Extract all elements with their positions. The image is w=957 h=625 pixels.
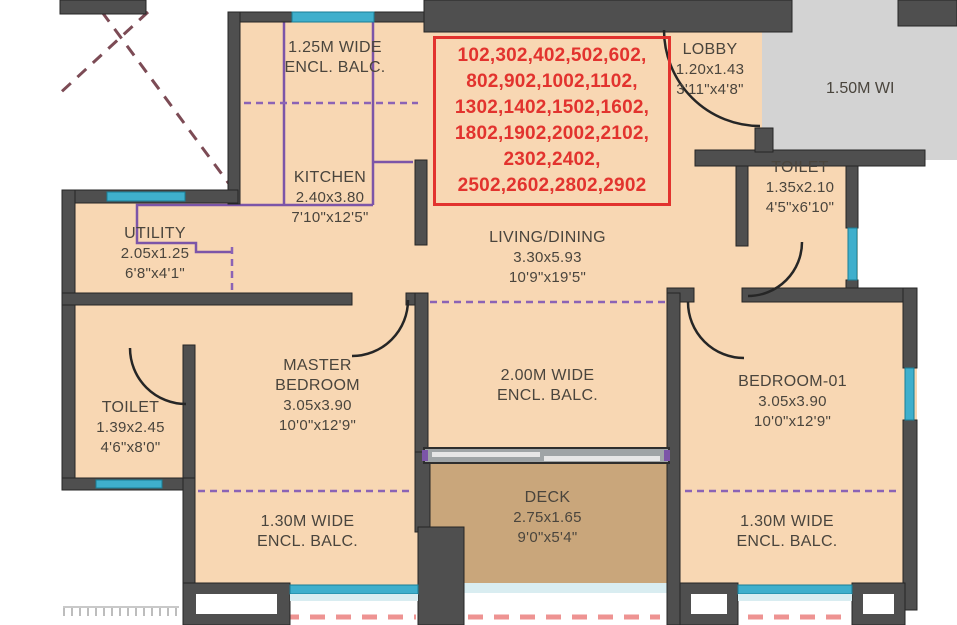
room-name: ENCL. BALC.	[430, 386, 665, 406]
wall-segment	[742, 288, 917, 302]
room-dim-ft: 4'6"x8'0"	[68, 438, 193, 458]
deck-sill	[463, 583, 667, 593]
maroon-dashed	[102, 12, 238, 196]
room-dim-m: 3.05x3.90	[680, 392, 905, 412]
wall-segment	[903, 420, 917, 610]
unit-numbers-line: 1802,1902,2002,2102,	[436, 121, 668, 147]
room-dim-ft: 10'9"x19'5"	[430, 268, 665, 288]
planter-box-inner	[196, 594, 277, 614]
wall-segment	[903, 288, 917, 368]
room-name: TOILET	[68, 398, 193, 418]
unit-numbers-line: 802,902,1002,1102,	[436, 69, 668, 95]
room-name: 1.25M WIDE	[245, 38, 425, 58]
room-dim-m: 3.30x5.93	[430, 248, 665, 268]
sliding-door-panel	[432, 452, 540, 457]
wall-segment	[60, 0, 146, 14]
unit-numbers-line: 2302,2402,	[436, 147, 668, 173]
room-name: ENCL. BALC.	[200, 532, 415, 552]
outside-patch	[288, 601, 420, 625]
master-bedroom-label: MASTER BEDROOM 3.05x3.90 10'0"x12'9"	[210, 356, 425, 436]
room-dim-m: 1.20x1.43	[660, 60, 760, 80]
sliding-door-jamb	[422, 450, 428, 461]
unit-numbers-line: 102,302,402,502,602,	[436, 43, 668, 69]
window-segment	[292, 12, 374, 22]
sliding-door-jamb	[664, 450, 670, 461]
room-name: LOBBY	[660, 40, 760, 60]
room-dim-m: 1.39x2.45	[68, 418, 193, 438]
window-segment	[96, 480, 162, 488]
unit-numbers-line: 2502,2602,2802,2902	[436, 173, 668, 199]
room-name: 1.30M WIDE	[672, 512, 902, 532]
room-name: DECK	[440, 488, 655, 508]
room-name: MASTER	[210, 356, 425, 376]
wall-segment	[228, 12, 240, 204]
room-name: 2.00M WIDE	[430, 366, 665, 386]
room-name: ENCL. BALC.	[245, 58, 425, 78]
unit-numbers-box: 102,302,402,502,602, 802,902,1002,1102, …	[433, 36, 671, 206]
utility-label: UTILITY 2.05x1.25 6'8"x4'1"	[75, 224, 235, 284]
room-dim-ft: 6'8"x4'1"	[75, 264, 235, 284]
planter-box-inner	[863, 594, 894, 614]
unit-numbers-line: 1302,1402,1502,1602,	[436, 95, 668, 121]
bedroom01-label: BEDROOM-01 3.05x3.90 10'0"x12'9"	[680, 372, 905, 432]
floor-plan: 102,302,402,502,602, 802,902,1002,1102, …	[0, 0, 957, 625]
window-segment	[738, 585, 852, 594]
room-dim-ft: 7'10"x12'5"	[240, 208, 420, 228]
deck-label: DECK 2.75x1.65 9'0"x5'4"	[440, 488, 655, 548]
outside-patch	[463, 593, 667, 625]
room-name: ENCL. BALC.	[672, 532, 902, 552]
wall-segment	[374, 12, 426, 22]
corridor-label: 1.50M WI	[826, 80, 957, 98]
planter-box-inner	[691, 594, 727, 614]
room-dim-m: 2.40x3.80	[240, 188, 420, 208]
outside-patch	[736, 601, 854, 625]
kitchen-label: KITCHEN 2.40x3.80 7'10"x12'5"	[240, 168, 420, 228]
window-sill	[290, 594, 418, 601]
living-dining-label: LIVING/DINING 3.30x5.93 10'9"x19'5"	[430, 228, 665, 288]
lobby-label: LOBBY 1.20x1.43 3'11"x4'8"	[660, 40, 760, 100]
window-segment	[848, 228, 857, 280]
room-name: BEDROOM-01	[680, 372, 905, 392]
room-dim-ft: 3'11"x4'8"	[660, 80, 760, 100]
toilet-left-label: TOILET 1.39x2.45 4'6"x8'0"	[68, 398, 193, 458]
balcony-mid-label: 2.00M WIDE ENCL. BALC.	[430, 366, 665, 406]
window-segment	[905, 368, 914, 420]
room-dim-ft: 4'5"x6'10"	[740, 198, 860, 218]
room-dim-ft: 9'0"x5'4"	[440, 528, 655, 548]
room-name: 1.30M WIDE	[200, 512, 415, 532]
balcony-bl-label: 1.30M WIDE ENCL. BALC.	[200, 512, 415, 552]
room-name: BEDROOM	[210, 376, 425, 396]
balcony-top-label: 1.25M WIDE ENCL. BALC.	[245, 38, 425, 78]
window-segment	[107, 192, 185, 201]
sliding-door	[422, 448, 670, 463]
window-segment	[290, 585, 418, 594]
room-dim-m: 1.35x2.10	[740, 178, 860, 198]
toilet-left-area	[62, 293, 195, 490]
room-dim-m: 2.75x1.65	[440, 508, 655, 528]
living-neck-area	[667, 150, 736, 303]
balcony-br-label: 1.30M WIDE ENCL. BALC.	[672, 512, 902, 552]
room-dim-m: 2.05x1.25	[75, 244, 235, 264]
room-name: LIVING/DINING	[430, 228, 665, 248]
room-name: UTILITY	[75, 224, 235, 244]
room-name: TOILET	[740, 158, 860, 178]
sliding-door-panel	[544, 456, 660, 461]
wall-segment	[755, 128, 773, 152]
room-dim-m: 3.05x3.90	[210, 396, 425, 416]
wall-segment	[62, 293, 352, 305]
wall-segment	[898, 0, 957, 26]
wall-segment	[424, 0, 792, 32]
room-dim-ft: 10'0"x12'9"	[210, 416, 425, 436]
ground-hatch-line	[63, 606, 179, 616]
window-sill	[738, 594, 852, 601]
outside-patch	[905, 610, 917, 625]
toilet-top-label: TOILET 1.35x2.10 4'5"x6'10"	[740, 158, 860, 218]
room-dim-ft: 10'0"x12'9"	[680, 412, 905, 432]
room-name: KITCHEN	[240, 168, 420, 188]
